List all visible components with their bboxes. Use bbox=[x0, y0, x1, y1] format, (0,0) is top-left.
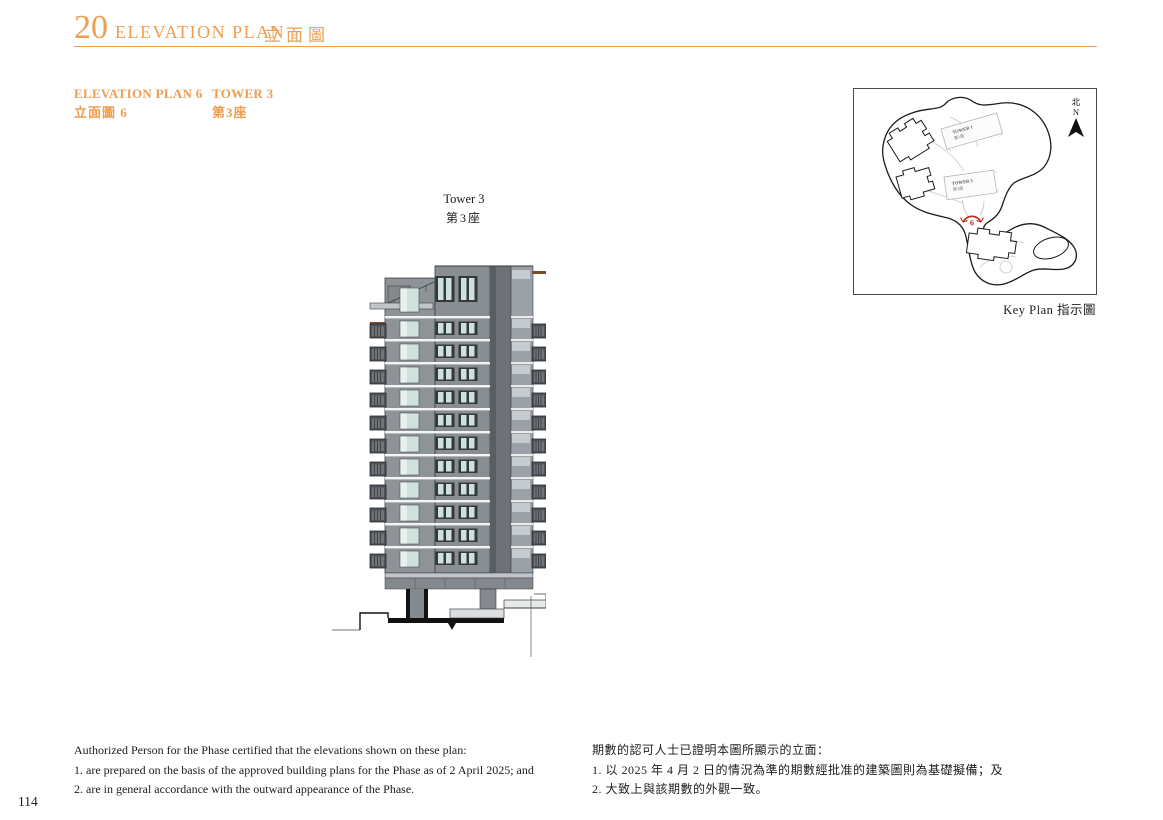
certification-notes-en: Authorized Person for the Phase certifie… bbox=[74, 741, 589, 800]
tower-label-zh: 第3座 bbox=[212, 102, 248, 121]
elevation-drawing bbox=[330, 256, 546, 660]
key-plan: TOWER 1 第1座 TOWER 3 第3座 6 北 N bbox=[853, 88, 1097, 295]
page-number: 114 bbox=[18, 794, 38, 810]
north-compass-icon: 北 N bbox=[1068, 97, 1084, 137]
page-title-zh: 立面圖 bbox=[264, 21, 330, 46]
certification-notes-zh: 期數的認可人士已證明本圖所顯示的立面： 1. 以 2025 年 4 月 2 日的… bbox=[592, 741, 1092, 800]
key-plan-tower-3: TOWER 3 第3座 bbox=[944, 170, 1000, 200]
site-loop-outline bbox=[1031, 233, 1071, 263]
notes-zh-item-1: 1. 以 2025 年 4 月 2 日的情況為準的期數經批准的建築圖則為基礎擬備… bbox=[592, 761, 1092, 781]
notes-en-item-1: 1. are prepared on the basis of the appr… bbox=[74, 761, 589, 781]
elevation-plan-label-zh: 立面圖 6 bbox=[74, 102, 128, 121]
notes-zh-item-2: 2. 大致上與該期數的外觀一致。 bbox=[592, 780, 1092, 800]
compass-label-zh: 北 bbox=[1072, 97, 1081, 107]
elevation-plan-label-en: ELEVATION PLAN 6 bbox=[74, 86, 203, 102]
header-rule bbox=[74, 46, 1097, 47]
compass-label-en: N bbox=[1073, 107, 1079, 117]
tower-caption-zh: 第3座 bbox=[394, 209, 534, 226]
page-title-en: ELEVATION PLAN bbox=[115, 22, 285, 43]
key-plan-tower-1: TOWER 1 第1座 bbox=[941, 113, 1003, 152]
tower-caption: Tower 3 第3座 bbox=[394, 192, 534, 226]
marker-number: 6 bbox=[970, 218, 974, 228]
tower-label-en: TOWER 3 bbox=[212, 86, 273, 102]
key-plan-caption: Key Plan 指示圖 bbox=[903, 299, 1096, 318]
tower-caption-en: Tower 3 bbox=[394, 192, 534, 207]
key-plan-map: TOWER 1 第1座 TOWER 3 第3座 6 北 N bbox=[854, 89, 1094, 292]
brochure-page: 20 ELEVATION PLAN 立面圖 ELEVATION PLAN 6 立… bbox=[0, 0, 1163, 820]
notes-en-item-2: 2. are in general accordance with the ou… bbox=[74, 780, 589, 800]
notes-zh-intro: 期數的認可人士已證明本圖所顯示的立面： bbox=[592, 741, 1092, 761]
notes-en-intro: Authorized Person for the Phase certifie… bbox=[74, 741, 589, 761]
elevation-6-marker: 6 bbox=[961, 216, 984, 227]
section-number: 20 bbox=[74, 11, 108, 45]
